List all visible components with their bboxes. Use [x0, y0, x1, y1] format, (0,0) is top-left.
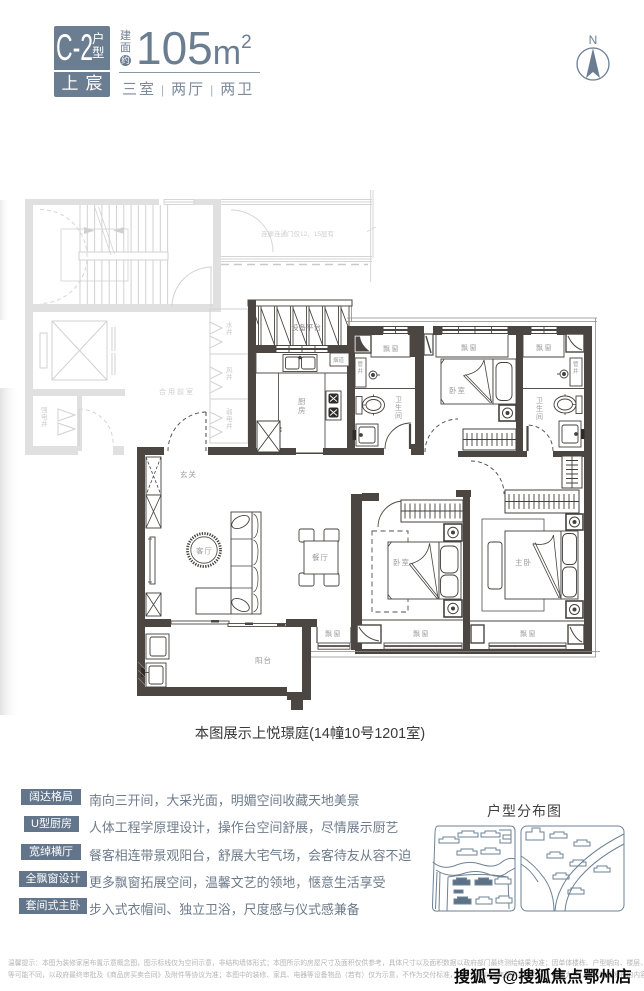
- svg-text:强电井: 强电井: [41, 406, 48, 428]
- svg-text:飘窗: 飘窗: [383, 344, 400, 353]
- svg-text:设备平台: 设备平台: [291, 322, 321, 332]
- svg-text:弱电井: 弱电井: [226, 408, 233, 430]
- svg-text:卧室: 卧室: [449, 385, 466, 395]
- svg-text:飘窗: 飘窗: [520, 629, 537, 638]
- svg-text:水井: 水井: [226, 320, 233, 336]
- svg-text:连廊连通门仅12、15层有: 连廊连通门仅12、15层有: [261, 229, 334, 238]
- svg-text:管井: 管井: [573, 360, 579, 375]
- svg-text:烟道: 烟道: [333, 356, 345, 364]
- svg-text:管井: 管井: [358, 360, 364, 375]
- svg-text:厨房: 厨房: [298, 397, 306, 415]
- svg-text:玄关: 玄关: [180, 469, 197, 479]
- svg-text:卧室: 卧室: [393, 557, 410, 567]
- svg-text:合用前室: 合用前室: [159, 387, 195, 396]
- svg-text:餐厅: 餐厅: [312, 553, 329, 562]
- svg-text:飘窗: 飘窗: [461, 343, 478, 352]
- svg-text:风井: 风井: [226, 366, 233, 381]
- svg-text:飘窗: 飘窗: [413, 629, 430, 638]
- svg-text:主卧: 主卧: [515, 557, 532, 567]
- svg-text:卫生间: 卫生间: [536, 397, 543, 421]
- svg-text:飘窗: 飘窗: [536, 343, 553, 352]
- svg-text:飘窗: 飘窗: [325, 629, 342, 638]
- svg-text:客厅: 客厅: [196, 546, 213, 556]
- svg-text:N: N: [589, 33, 598, 47]
- svg-text:阳台: 阳台: [255, 655, 272, 665]
- svg-text:卫生间: 卫生间: [395, 396, 402, 420]
